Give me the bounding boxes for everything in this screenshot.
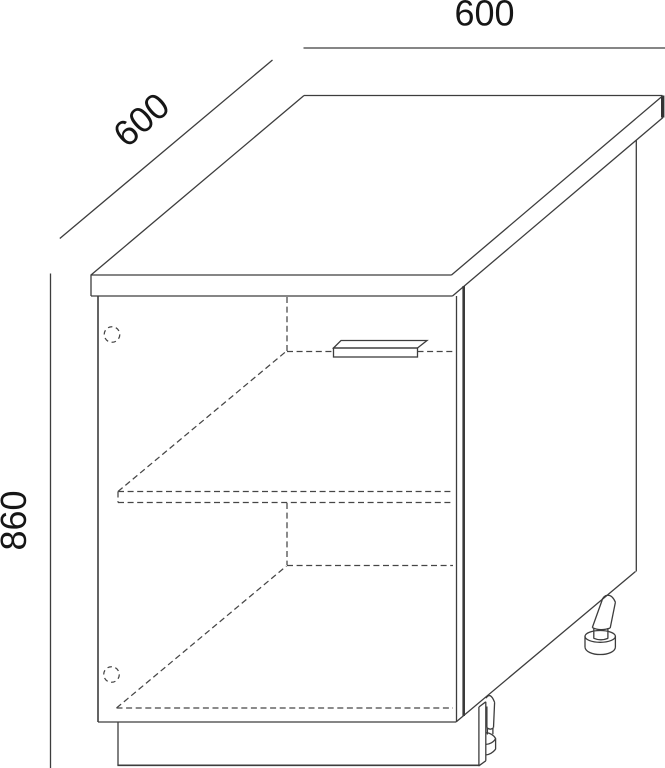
svg-text:600: 600	[454, 0, 514, 34]
svg-text:860: 860	[0, 490, 34, 550]
svg-text:600: 600	[105, 84, 177, 154]
